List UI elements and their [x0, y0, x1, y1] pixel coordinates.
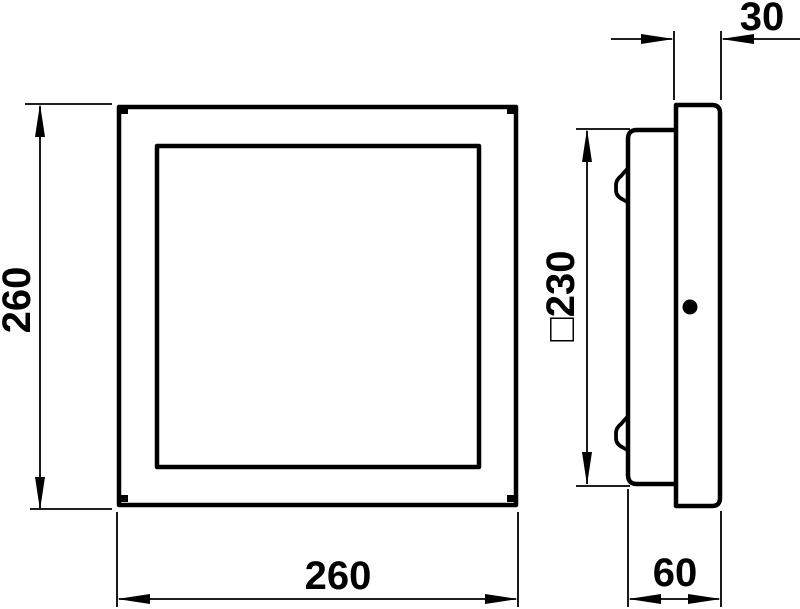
dimension-drawing: 260 260 30 □230: [0, 0, 800, 609]
arrowhead-left: [628, 594, 661, 604]
dim-label-recess-square: □230: [539, 251, 583, 342]
arrowhead-left: [117, 594, 150, 604]
corner-mark-top-right: [507, 107, 514, 114]
corner-mark-top-left: [121, 107, 128, 114]
side-front-bezel: [676, 105, 720, 506]
front-view: [119, 107, 516, 505]
dimension-front-width: 260: [117, 512, 518, 607]
dim-label-front-height: 260: [0, 267, 39, 334]
side-view: [616, 105, 720, 506]
arrowhead-right: [688, 594, 721, 604]
arrowhead-right: [485, 594, 518, 604]
arrowhead-up: [582, 129, 592, 162]
front-inner-panel: [157, 146, 479, 467]
dimension-bezel-depth: 30: [611, 0, 800, 100]
dim-label-bezel-depth: 30: [740, 0, 785, 39]
corner-mark-bottom-left: [121, 495, 128, 502]
arrowhead-up: [35, 104, 45, 137]
arrowhead-right: [641, 34, 674, 44]
side-rear-housing: [628, 130, 676, 484]
arrowhead-down: [582, 452, 592, 485]
dim-label-total-depth: 60: [653, 551, 698, 595]
corner-mark-bottom-right: [507, 495, 514, 502]
dimension-front-height: 260: [0, 104, 112, 510]
dim-label-front-width: 260: [305, 554, 372, 598]
technical-drawing-canvas: 260 260 30 □230: [0, 0, 800, 609]
screw-hole-dot: [683, 300, 698, 315]
arrowhead-down: [35, 477, 45, 510]
